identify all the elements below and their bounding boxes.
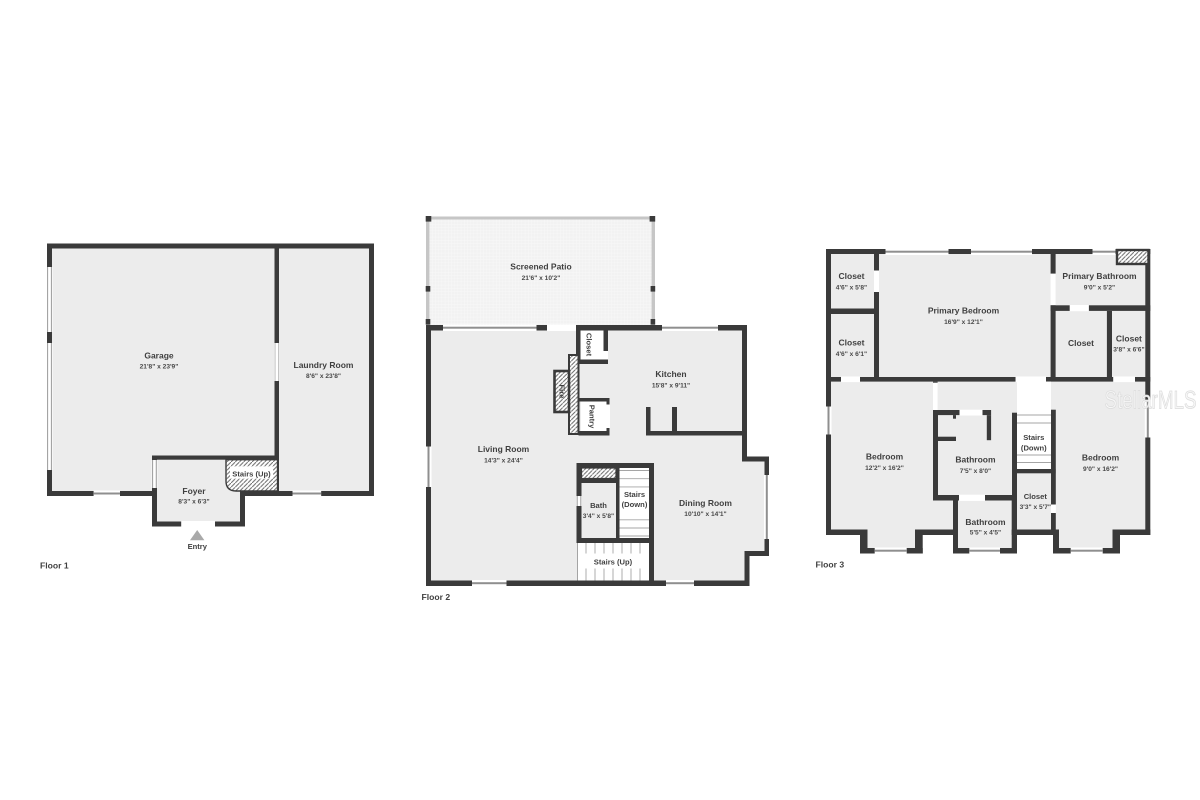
svg-text:Screened Patio: Screened Patio — [510, 262, 571, 272]
svg-text:21'8" x 23'9": 21'8" x 23'9" — [140, 364, 179, 371]
svg-text:Stairs: Stairs — [1023, 433, 1044, 442]
svg-text:4'6" x 6'1": 4'6" x 6'1" — [836, 351, 867, 358]
svg-text:Primary Bathroom: Primary Bathroom — [1062, 271, 1137, 281]
svg-text:Kitchen: Kitchen — [655, 369, 686, 379]
svg-text:Pantry: Pantry — [588, 405, 597, 429]
svg-text:5'5" x 4'5": 5'5" x 4'5" — [970, 530, 1001, 537]
svg-text:10'10" x 14'1": 10'10" x 14'1" — [684, 511, 726, 518]
svg-text:Stairs (Up): Stairs (Up) — [594, 558, 633, 567]
svg-text:Closet: Closet — [1024, 492, 1048, 501]
svg-text:Dining Room: Dining Room — [679, 498, 732, 508]
svg-text:Closet: Closet — [585, 333, 594, 357]
svg-text:Bathroom: Bathroom — [955, 455, 996, 465]
svg-text:Foyer: Foyer — [182, 486, 206, 496]
svg-text:Closet: Closet — [839, 338, 865, 348]
svg-text:Floor 1: Floor 1 — [40, 561, 69, 571]
svg-text:Closet: Closet — [839, 271, 865, 281]
svg-text:Bathroom: Bathroom — [965, 517, 1006, 527]
svg-text:Stairs (Up): Stairs (Up) — [232, 470, 271, 479]
svg-text:21'6" x 10'2": 21'6" x 10'2" — [522, 275, 561, 282]
svg-text:StellarMLS: StellarMLS — [1105, 387, 1197, 415]
svg-text:9'0" x 5'2": 9'0" x 5'2" — [1084, 285, 1115, 292]
svg-text:Bedroom: Bedroom — [866, 452, 904, 462]
svg-text:Living Room: Living Room — [478, 444, 530, 454]
svg-text:3'8" x 6'6": 3'8" x 6'6" — [1113, 347, 1144, 354]
svg-text:Fire: Fire — [558, 385, 567, 399]
svg-text:3'4" x 5'8": 3'4" x 5'8" — [583, 513, 614, 520]
svg-text:12'2" x 16'2": 12'2" x 16'2" — [865, 465, 904, 472]
svg-text:Stairs: Stairs — [624, 490, 645, 499]
svg-text:Bedroom: Bedroom — [1082, 453, 1120, 463]
svg-text:16'9" x 12'1": 16'9" x 12'1" — [944, 319, 983, 326]
svg-text:Primary Bedroom: Primary Bedroom — [928, 306, 1000, 316]
svg-text:4'6" x 5'8": 4'6" x 5'8" — [836, 285, 867, 292]
svg-text:9'0" x 16'2": 9'0" x 16'2" — [1083, 466, 1118, 473]
svg-text:Entry: Entry — [188, 542, 208, 551]
svg-text:Closet: Closet — [1116, 334, 1142, 344]
svg-text:3'3" x 5'7": 3'3" x 5'7" — [1020, 504, 1051, 511]
svg-text:15'8" x 9'11": 15'8" x 9'11" — [652, 383, 690, 390]
svg-text:Closet: Closet — [1068, 338, 1094, 348]
svg-text:Laundry Room: Laundry Room — [294, 360, 354, 370]
svg-text:Floor 3: Floor 3 — [816, 560, 845, 570]
svg-text:7'5" x 8'0": 7'5" x 8'0" — [960, 468, 991, 475]
svg-text:Bath: Bath — [590, 501, 607, 510]
svg-text:8'6" x 23'8": 8'6" x 23'8" — [306, 373, 341, 380]
svg-text:Garage: Garage — [144, 351, 174, 361]
svg-text:(Down): (Down) — [1021, 444, 1047, 453]
svg-text:8'3" x 6'3": 8'3" x 6'3" — [178, 499, 209, 506]
svg-text:Floor 2: Floor 2 — [422, 592, 451, 602]
svg-text:(Down): (Down) — [622, 500, 648, 509]
svg-text:14'3" x 24'4": 14'3" x 24'4" — [484, 458, 523, 465]
